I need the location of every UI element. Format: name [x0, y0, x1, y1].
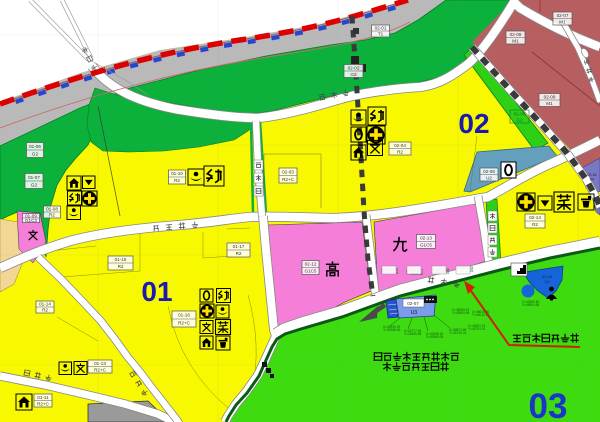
svg-text:U3: U3 [411, 310, 418, 316]
svg-text:G1C5: G1C5 [420, 243, 432, 248]
svg-text:R2+C: R2+C [282, 177, 295, 182]
svg-text:R2+C: R2+C [178, 321, 191, 326]
svg-text:01-16: 01-16 [178, 313, 190, 318]
svg-text:01-13: 01-13 [94, 361, 106, 366]
svg-text:02-01: 02-01 [375, 26, 387, 31]
svg-text:Y=42701.91: Y=42701.91 [468, 327, 486, 331]
svg-text:01: 01 [141, 276, 172, 307]
svg-text:M1: M1 [559, 19, 566, 24]
svg-text:G1C3: G1C3 [25, 218, 37, 223]
svg-text:R2: R2 [397, 149, 403, 154]
svg-text:Y=48904.56: Y=48904.56 [522, 303, 540, 307]
svg-text:R2: R2 [174, 178, 180, 183]
svg-text:G2: G2 [516, 118, 523, 123]
svg-text:U9: U9 [590, 178, 595, 182]
svg-text:G2: G2 [31, 182, 38, 187]
svg-text:02-13: 02-13 [420, 236, 432, 241]
svg-text:02-03: 02-03 [282, 169, 294, 174]
svg-text:T1: T1 [378, 32, 384, 37]
svg-text:01-15: 01-15 [115, 257, 127, 262]
svg-text:R2: R2 [49, 213, 55, 218]
svg-text:02-07: 02-07 [557, 13, 569, 18]
svg-text:01-08: 01-08 [46, 207, 58, 212]
svg-text:02-14: 02-14 [529, 215, 541, 220]
svg-text:R2: R2 [118, 264, 124, 269]
svg-text:M1: M1 [512, 38, 519, 43]
svg-text:G2: G2 [32, 151, 39, 156]
svg-text:02-09: 02-09 [544, 94, 556, 99]
svg-text:Y=34968.66: Y=34968.66 [383, 328, 401, 332]
svg-text:R2: R2 [42, 308, 48, 313]
svg-text:Y=49369.05: Y=49369.05 [426, 335, 444, 339]
svg-text:02-08: 02-08 [510, 32, 522, 37]
svg-text:G2: G2 [350, 72, 357, 77]
svg-text:02-12: 02-12 [305, 262, 317, 267]
svg-text:02-05: 02-05 [514, 112, 526, 117]
svg-text:01-11: 01-11 [37, 395, 49, 400]
svg-text:R2+C: R2+C [37, 401, 50, 406]
svg-text:02-07: 02-07 [407, 301, 419, 306]
svg-text:R2: R2 [236, 251, 242, 256]
svg-text:01-06: 01-06 [29, 144, 41, 149]
svg-text:Y=43013.81: Y=43013.81 [472, 313, 490, 317]
svg-text:02-02: 02-02 [348, 65, 360, 70]
svg-text:U1: U1 [544, 279, 550, 284]
svg-text:U2: U2 [486, 175, 492, 180]
svg-text:Y=45409.69: Y=45409.69 [452, 311, 470, 315]
svg-text:01-10: 01-10 [171, 171, 183, 176]
svg-text:G1C5: G1C5 [304, 269, 316, 274]
svg-text:02: 02 [458, 108, 489, 139]
svg-text:R2+C: R2+C [94, 367, 107, 372]
svg-text:02-15: 02-15 [588, 173, 597, 177]
svg-text:01-14: 01-14 [39, 302, 51, 307]
svg-text:Y=31016.34: Y=31016.34 [449, 331, 467, 335]
svg-text:R2: R2 [532, 222, 538, 227]
svg-text:02-06: 02-06 [483, 169, 495, 174]
svg-text:01-17: 01-17 [233, 244, 245, 249]
svg-text:Y=30496.85: Y=30496.85 [404, 332, 422, 336]
svg-text:01-07: 01-07 [28, 175, 40, 180]
svg-text:03: 03 [529, 387, 568, 422]
svg-text:M1: M1 [546, 101, 553, 106]
svg-text:02-04: 02-04 [394, 143, 406, 148]
